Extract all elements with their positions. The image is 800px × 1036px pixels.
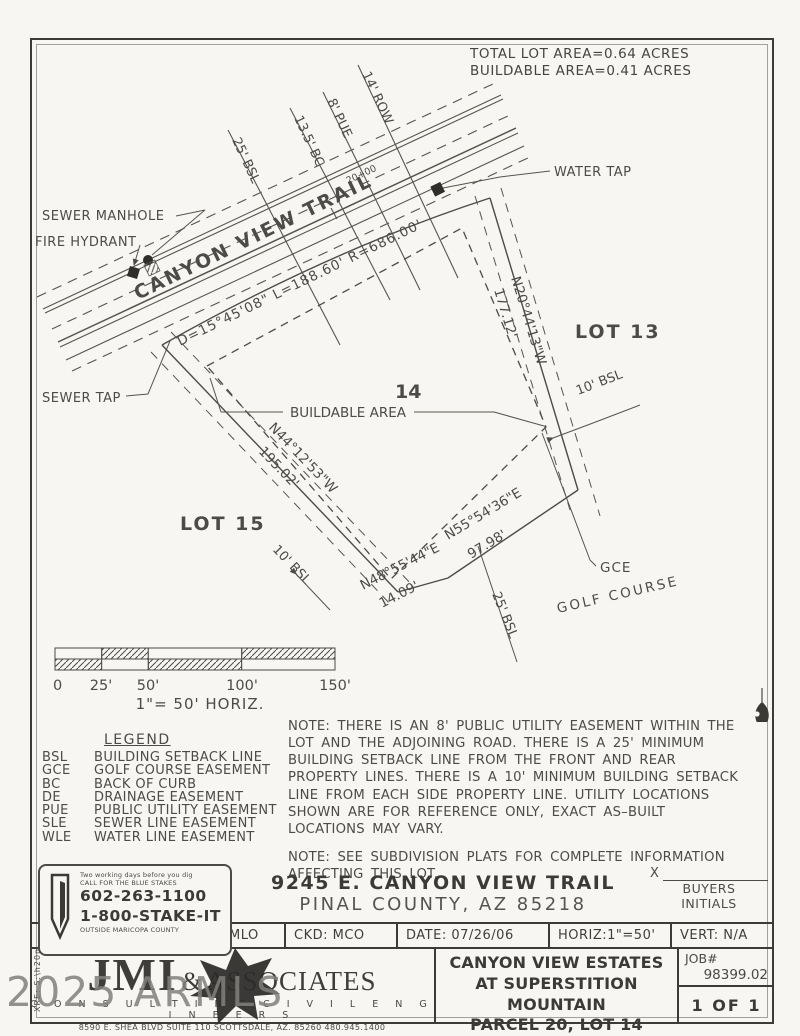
lot-15-label: LOT 15 (180, 513, 266, 535)
property-address: 9245 E. CANYON VIEW TRAIL PINAL COUNTY, … (238, 872, 648, 915)
legend-abbr: SLE (42, 817, 94, 830)
water-tap-label: WATER TAP (554, 165, 632, 180)
legend-row: PUEPUBLIC UTILITY EASEMENT (42, 804, 294, 817)
job-label: JOB# (685, 951, 718, 966)
fire-hydrant-symbol (127, 266, 140, 279)
legend-row: SLESEWER LINE EASEMENT (42, 817, 294, 830)
legend-row: WLEWATER LINE EASEMENT (42, 831, 294, 844)
buyers-x-mark: X (650, 866, 659, 881)
scale-tick-50: 50' (137, 678, 159, 694)
scale-tick-150: 150' (319, 678, 351, 694)
legend-row: BSLBUILDING SETBACK LINE (42, 751, 294, 764)
legend-abbr: BC (42, 778, 94, 791)
bluestakes-line3: OUTSIDE MARICOPA COUNTY (80, 926, 226, 934)
scale-caption: 1"= 50' HORIZ. (136, 695, 265, 713)
legend-desc: SEWER LINE EASEMENT (94, 817, 256, 830)
vert-scale-field: VERT: N/A (670, 924, 774, 947)
legend-desc: PUBLIC UTILITY EASEMENT (94, 804, 277, 817)
bluestakes-line1: Two working days before you dig (80, 871, 226, 879)
scale-tick-25: 25' (90, 678, 112, 694)
buyers-signature-line[interactable] (663, 867, 768, 881)
bsl25-bottom-label: 25' BSL (488, 590, 520, 641)
legend-abbr: BSL (42, 751, 94, 764)
callout-25-bsl: 25' BSL (228, 135, 262, 186)
road-name-label: CANYON VIEW TRAIL (131, 170, 377, 305)
legend-title: LEGEND (104, 732, 294, 748)
legend-desc: DRAINAGE EASEMENT (94, 791, 244, 804)
legend: LEGEND BSLBUILDING SETBACK LINE GCEGOLF … (42, 732, 294, 844)
legend-abbr: WLE (42, 831, 94, 844)
lot-13-label: LOT 13 (575, 321, 661, 343)
legend-desc: BUILDING SETBACK LINE (94, 751, 262, 764)
sewer-tap-leader (126, 341, 170, 396)
project-line1: CANYON VIEW ESTATES (436, 953, 677, 974)
address-line1: 9245 E. CANYON VIEW TRAIL (238, 872, 648, 894)
legend-desc: WATER LINE EASEMENT (94, 831, 255, 844)
job-block: JOB# 98399.02 1 OF 1 (679, 949, 774, 1024)
buyers-label-2: INITIALS (650, 896, 768, 911)
legend-row: GCEGOLF COURSE EASEMENT (42, 764, 294, 777)
legend-abbr: GCE (42, 764, 94, 777)
checked-field: CKD: MCO (284, 924, 396, 947)
legend-row: DEDRAINAGE EASEMENT (42, 791, 294, 804)
north-arrow (748, 688, 774, 722)
buyers-label-1: BUYERS (650, 881, 768, 896)
callout-13-5-bc: 13.5' BC (290, 113, 327, 169)
scale-tick-0: 0 (53, 678, 62, 694)
legend-desc: GOLF COURSE EASEMENT (94, 764, 270, 777)
note-utility-easement: NOTE: THERE IS AN 8' PUBLIC UTILITY EASE… (288, 718, 748, 838)
site-plan-drawing: 25' BSL 13.5' BC 8' PUE 14' ROW 20+00 CA… (30, 38, 774, 722)
scale-tick-100: 100' (226, 678, 258, 694)
bsl10-left-label: 10' BSL (269, 542, 314, 588)
horiz-scale-field: HORIZ:1"=50' (548, 924, 670, 947)
job-number: 98399.02 (685, 967, 768, 983)
lot-number-label: 14 (395, 381, 421, 403)
bluestakes-line2: CALL FOR THE BLUE STAKES (80, 879, 226, 887)
plat-sheet: TOTAL LOT AREA=0.64 ACRES BUILDABLE AREA… (0, 0, 800, 1036)
bsl10-right-dim-b (593, 405, 640, 423)
buyers-initials-block: X BUYERS INITIALS (650, 866, 768, 911)
armls-watermark: 2025 ARMLS (6, 968, 284, 1016)
legend-desc: BACK OF CURB (94, 778, 197, 791)
gce-leader (542, 433, 596, 566)
notes: NOTE: THERE IS AN 8' PUBLIC UTILITY EASE… (288, 718, 748, 883)
sewer-manhole-label: SEWER MANHOLE (42, 209, 165, 224)
scale-bar: 0 25' 50' 100' 150' 1"= 50' HORIZ. (53, 648, 351, 713)
legend-abbr: PUE (42, 804, 94, 817)
stake-icon (46, 871, 76, 950)
sewer-tap-label: SEWER TAP (42, 391, 121, 406)
project-line3: PARCEL 20, LOT 14 (436, 1015, 677, 1036)
bluestakes-phone2: 1-800-STAKE-IT (80, 907, 226, 926)
legend-abbr: DE (42, 791, 94, 804)
address-line2: PINAL COUNTY, AZ 85218 (238, 894, 648, 915)
project-line2: AT SUPERSTITION MOUNTAIN (436, 974, 677, 1016)
golf-course-label: GOLF COURSE (555, 573, 680, 617)
project-title-block: CANYON VIEW ESTATES AT SUPERSTITION MOUN… (434, 949, 679, 1024)
buildable-area-label: BUILDABLE AREA (290, 405, 407, 421)
fire-hydrant-label: FIRE HYDRANT (35, 235, 136, 250)
bluestakes-phone1: 602-263-1100 (80, 887, 226, 906)
legend-row: BCBACK OF CURB (42, 778, 294, 791)
date-field: DATE: 07/26/06 (396, 924, 548, 947)
callout-14-row: 14' ROW (358, 69, 395, 127)
callout-8-pue: 8' PUE (323, 96, 354, 140)
sheet-number: 1 OF 1 (679, 987, 774, 1024)
gce-label: GCE (600, 560, 631, 576)
curve-data-label: D=15°45'08" L=188.60' R=686.00' (175, 216, 426, 349)
bsl10-left-dim (296, 574, 330, 610)
distance-bottom: 97.98' (465, 527, 510, 563)
blue-stakes-box: Two working days before you dig CALL FOR… (38, 864, 232, 956)
water-tap-leader (443, 171, 550, 188)
bsl10-right-label: 10' BSL (574, 367, 625, 399)
